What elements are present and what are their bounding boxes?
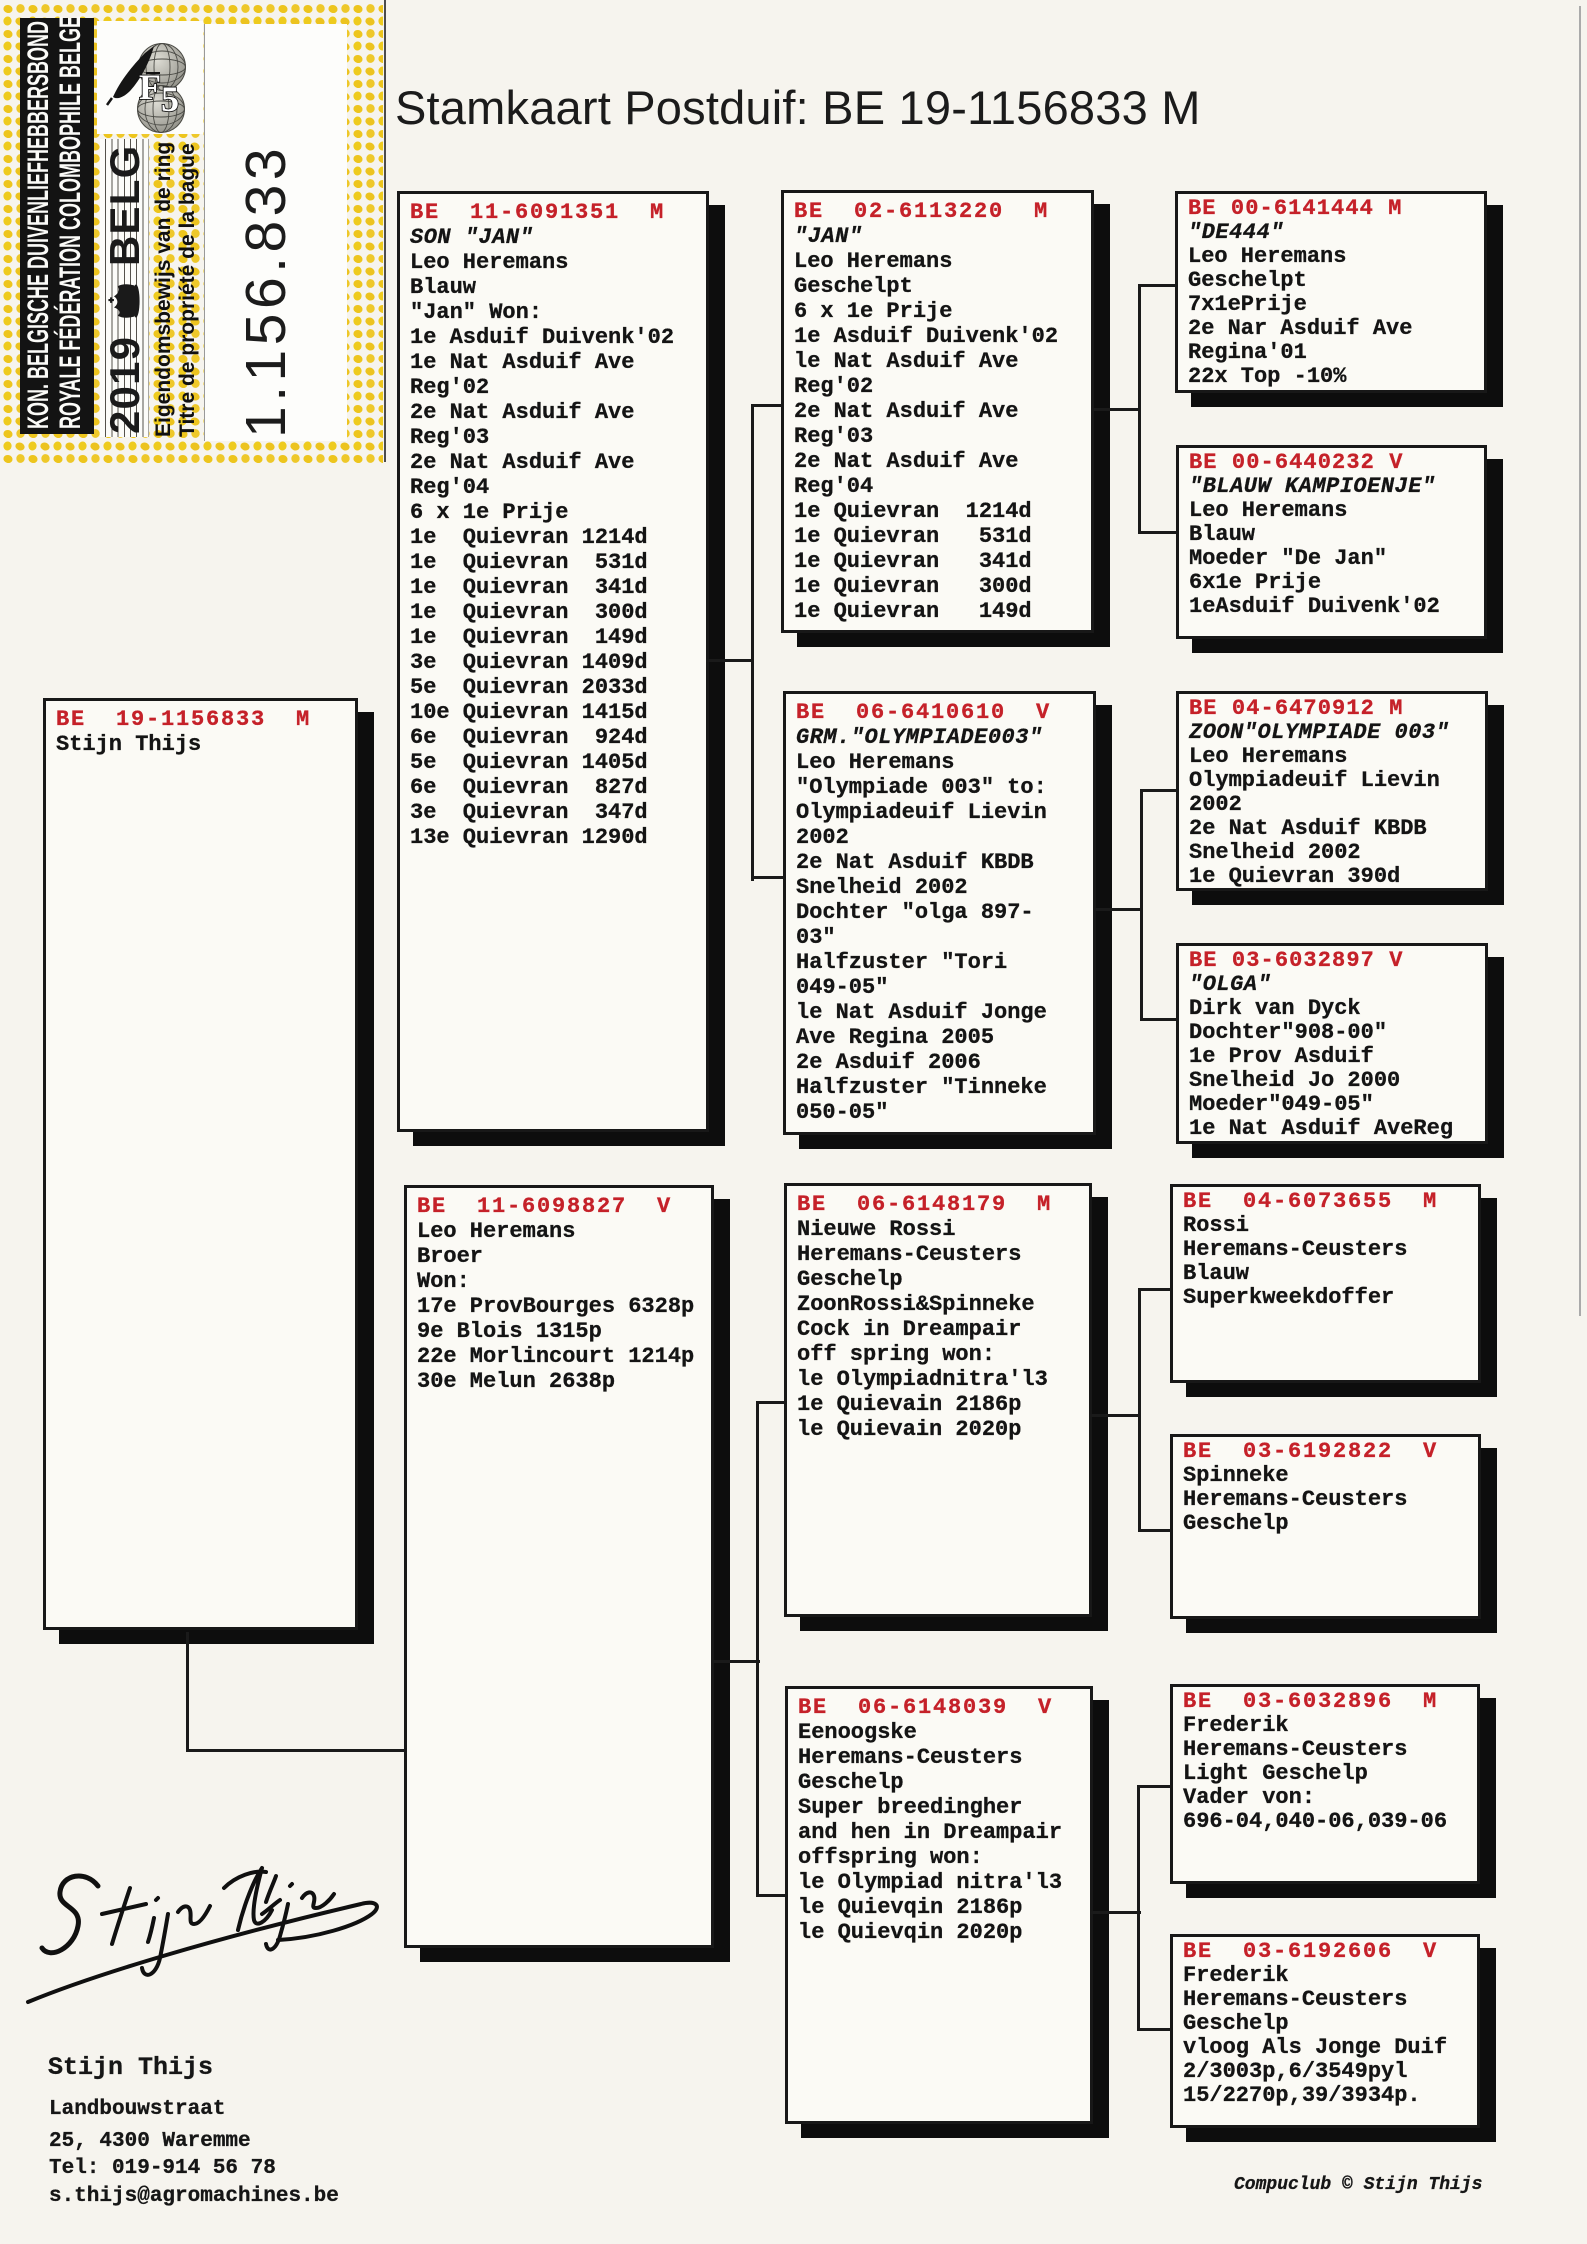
svg-text:5: 5 — [161, 79, 179, 119]
